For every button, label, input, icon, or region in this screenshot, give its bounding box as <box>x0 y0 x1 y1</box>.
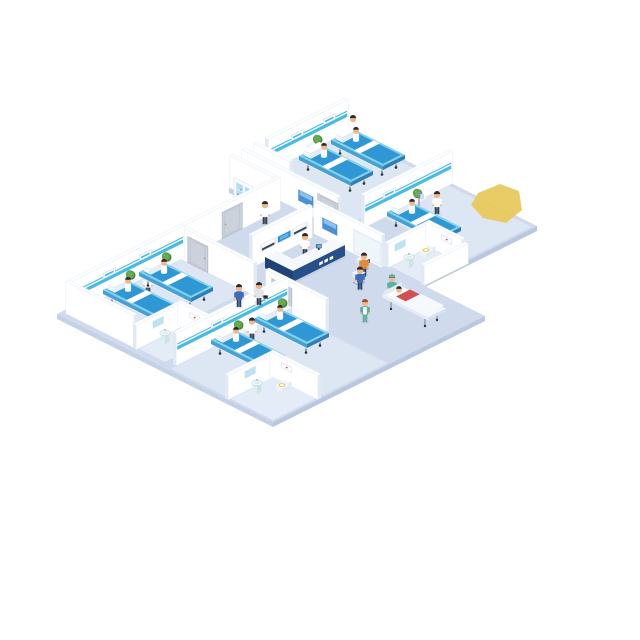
hospital-isometric-illustration <box>0 0 640 640</box>
sink-bath-right <box>404 253 414 268</box>
sink-bath-mid <box>160 329 170 344</box>
sink-bath-bottom <box>252 379 262 394</box>
scene-canvas <box>0 0 640 640</box>
